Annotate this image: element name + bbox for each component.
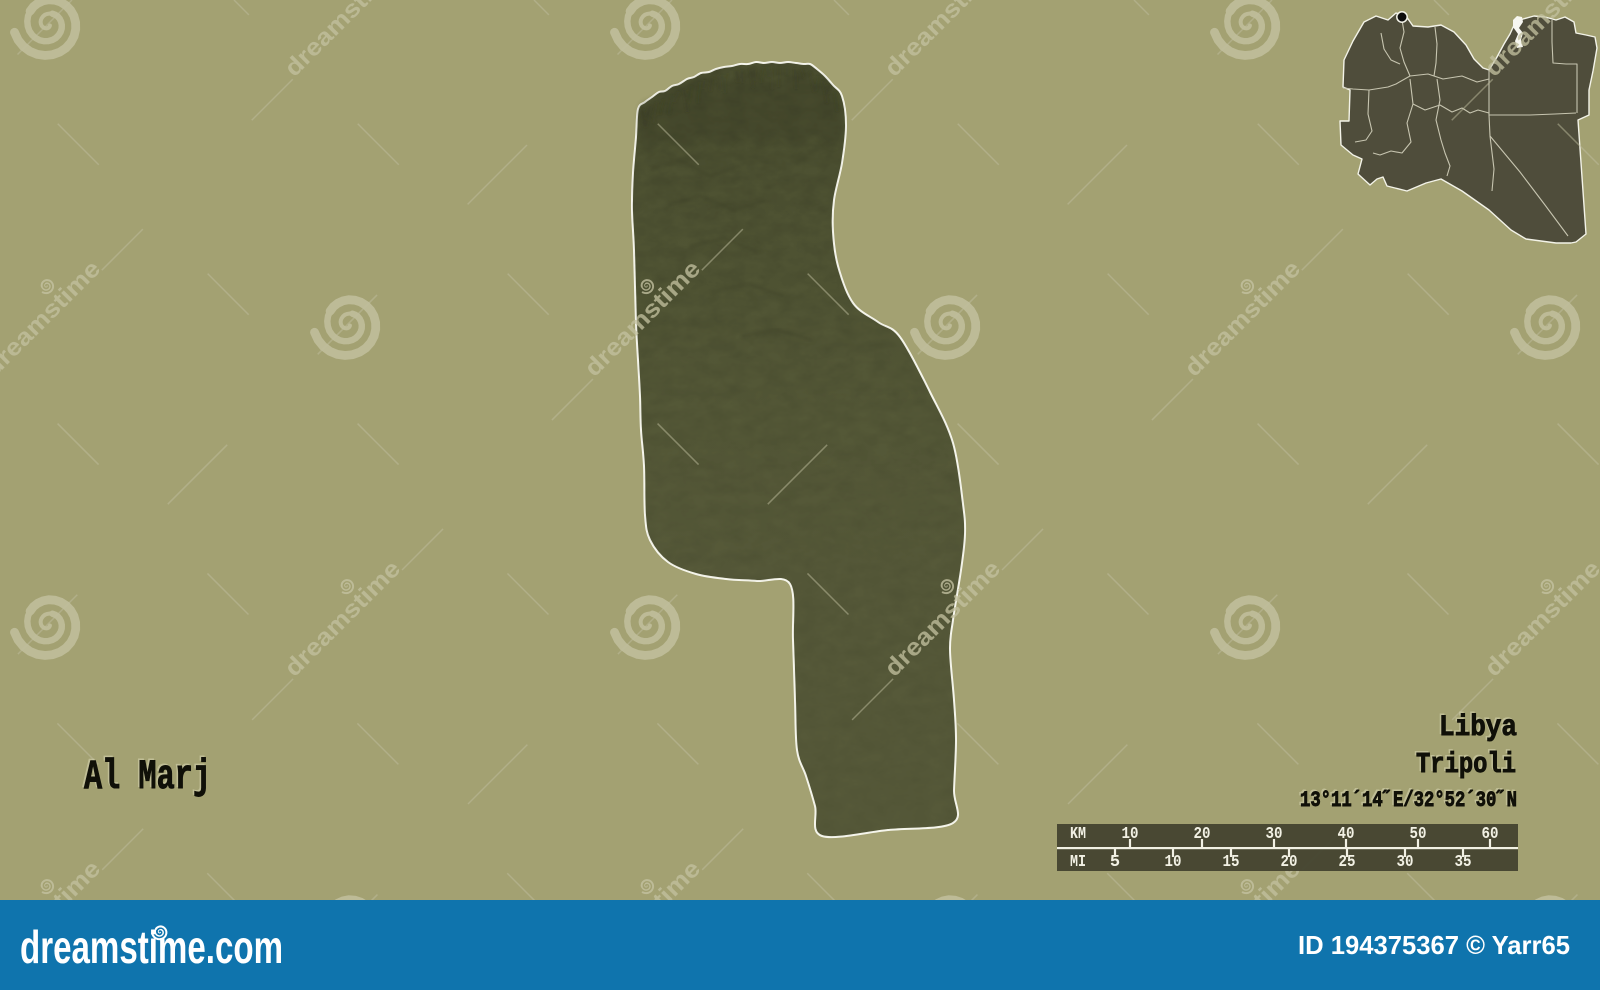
- svg-text:35: 35: [1455, 853, 1472, 872]
- svg-text:60: 60: [1482, 825, 1499, 844]
- svg-text:5: 5: [1110, 853, 1120, 872]
- svg-text:Tripoli: Tripoli: [1416, 748, 1516, 781]
- svg-text:40: 40: [1338, 825, 1355, 844]
- svg-text:KM: KM: [1070, 825, 1086, 844]
- svg-text:Libya: Libya: [1439, 711, 1517, 745]
- svg-text:30: 30: [1266, 825, 1283, 844]
- svg-text:10: 10: [1122, 825, 1139, 844]
- svg-text:13°11´14˝E/32°52´30˝N: 13°11´14˝E/32°52´30˝N: [1300, 788, 1517, 813]
- svg-text:ID 194375367 © Yarr65: ID 194375367 © Yarr65: [1298, 930, 1570, 960]
- svg-text:15: 15: [1223, 853, 1240, 872]
- svg-text:20: 20: [1281, 853, 1298, 872]
- svg-text:25: 25: [1339, 853, 1356, 872]
- svg-text:MI: MI: [1070, 853, 1086, 872]
- svg-text:10: 10: [1165, 853, 1182, 872]
- svg-text:30: 30: [1397, 853, 1414, 872]
- svg-text:dreamstime.com: dreamstime.com: [20, 921, 283, 973]
- svg-text:20: 20: [1194, 825, 1211, 844]
- svg-text:Al Marj: Al Marj: [84, 753, 211, 801]
- svg-text:50: 50: [1410, 825, 1427, 844]
